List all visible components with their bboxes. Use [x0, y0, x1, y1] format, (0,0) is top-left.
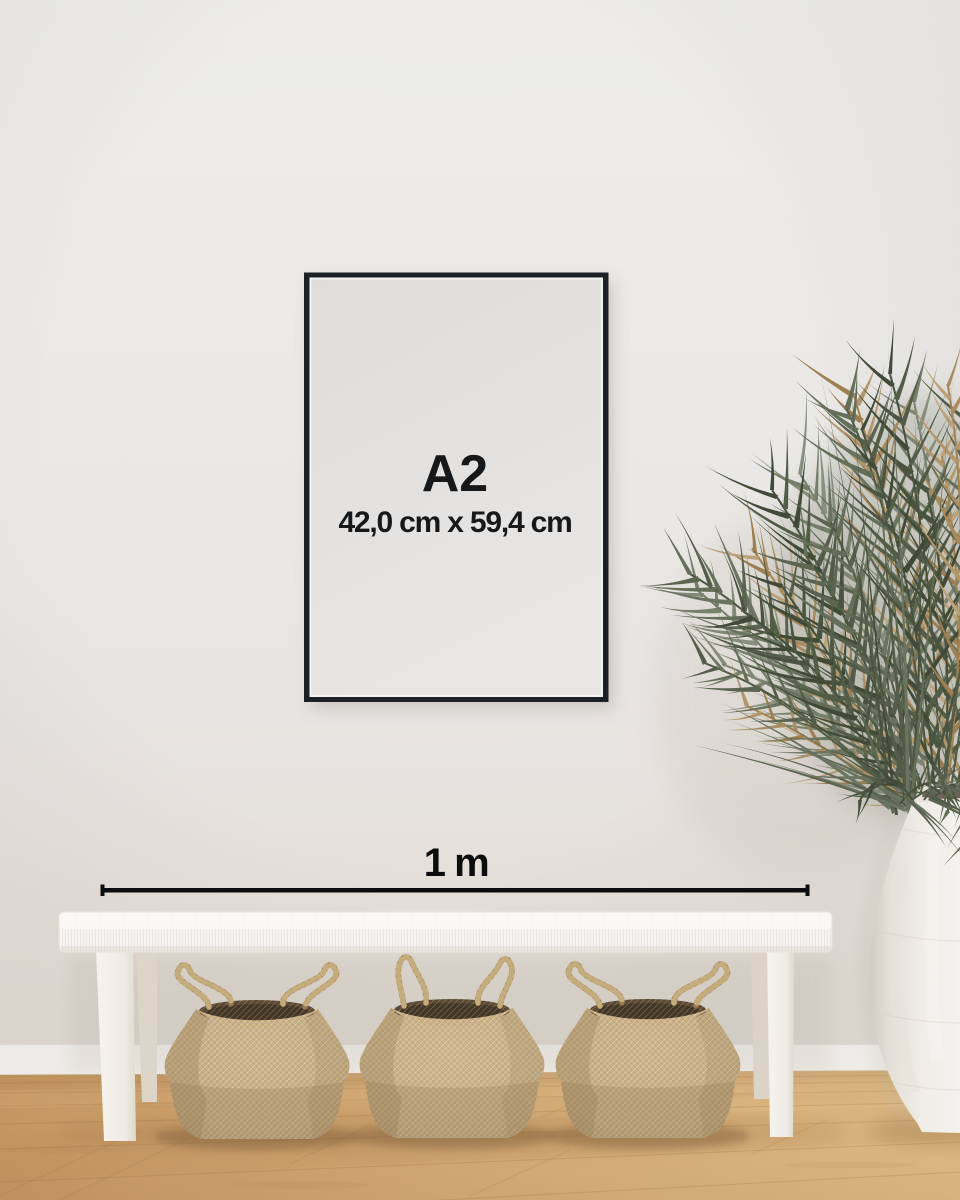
svg-text:A2: A2 — [422, 445, 488, 503]
svg-text:1 m: 1 m — [424, 841, 488, 885]
svg-text:42,0 cm x 59,4 cm: 42,0 cm x 59,4 cm — [338, 506, 571, 539]
